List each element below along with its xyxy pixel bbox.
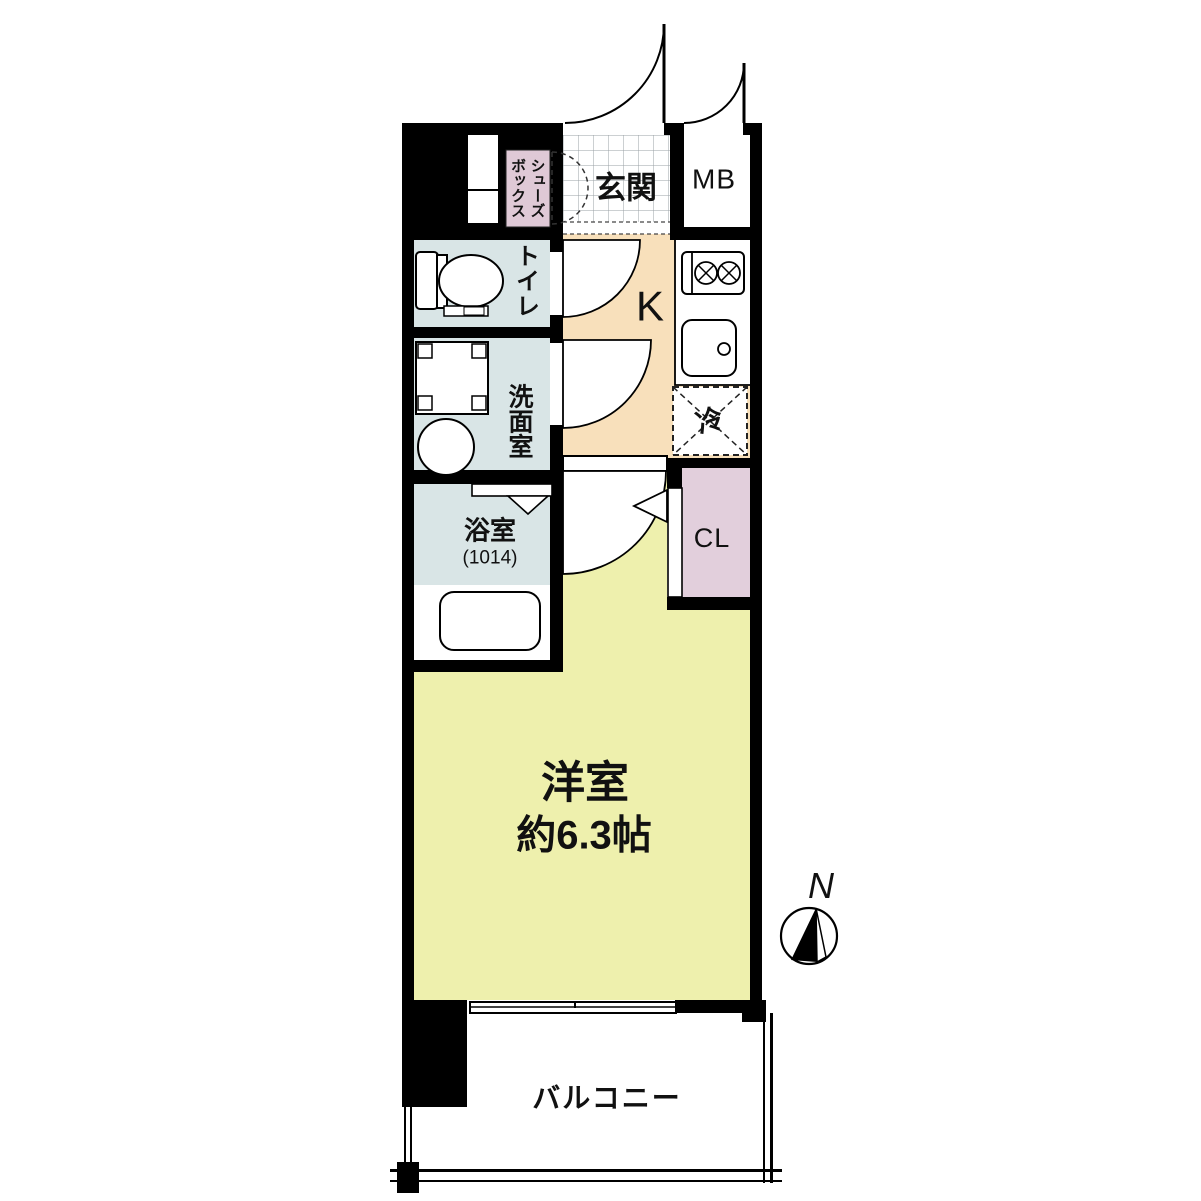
wall-segment xyxy=(667,468,682,488)
wall-segment xyxy=(742,1013,766,1022)
wall-segment xyxy=(402,327,550,338)
compass xyxy=(781,908,837,964)
toilet-label: トイレ xyxy=(511,244,538,319)
washbasin xyxy=(418,419,474,475)
meter-box-label: MB xyxy=(692,163,736,194)
bathroom-label: 浴室 xyxy=(464,516,516,545)
washroom-label: 洗面室 xyxy=(505,384,533,459)
pipe-space-box xyxy=(468,135,498,223)
washer-pan-corner xyxy=(418,396,432,410)
kitchen-label: K xyxy=(636,282,664,329)
entrance-label: 玄関 xyxy=(595,172,657,207)
bathroom-door-track xyxy=(472,484,552,496)
balcony-railing xyxy=(404,1107,406,1163)
sink-faucet xyxy=(718,343,730,355)
balcony-label: バルコニー xyxy=(532,1082,681,1113)
balcony-railing xyxy=(410,1107,412,1163)
main-room-doorway-header xyxy=(563,456,667,471)
wall-segment xyxy=(667,458,762,468)
wall-segment xyxy=(402,1000,467,1107)
wall-segment xyxy=(402,470,563,484)
washer-pan-corner xyxy=(472,396,486,410)
closet-label: CL xyxy=(694,523,731,553)
wall-segment xyxy=(550,425,563,672)
wall-segment xyxy=(750,123,762,1013)
entrance-step xyxy=(563,222,670,234)
wall-segment xyxy=(550,240,563,252)
shoe-box-label: シューズ ボックス xyxy=(508,158,547,218)
washer-pan-corner xyxy=(472,344,486,358)
meter-box-door-arc xyxy=(684,63,744,123)
entrance-door-arc xyxy=(565,24,664,123)
balcony-railing xyxy=(770,1013,773,1183)
wall-segment xyxy=(670,227,762,240)
balcony-railing xyxy=(390,1180,782,1182)
balcony-railing xyxy=(390,1169,782,1172)
bathroom-size-label: (1014) xyxy=(463,547,518,568)
toilet-tank xyxy=(416,252,438,309)
toilet-control-buttons xyxy=(464,307,484,315)
wall-segment xyxy=(670,123,684,240)
main-room-label: 洋室 xyxy=(541,758,629,807)
wall-segment xyxy=(550,315,563,343)
washer-pan-corner xyxy=(418,344,432,358)
wall-segment xyxy=(402,660,563,672)
wall-segment xyxy=(667,597,762,610)
toilet-bowl xyxy=(439,255,503,307)
bathtub xyxy=(440,592,540,650)
closet-door-panel xyxy=(668,488,682,597)
balcony-railing xyxy=(763,1013,765,1183)
floor-plan: 玄関 MB シューズ ボックス トイレ 洗面室 浴室 (1014) K 冷 CL… xyxy=(0,0,1201,1201)
wall-segment xyxy=(402,123,414,1010)
main-room-size-label: 約6.3帖 xyxy=(516,814,652,859)
compass-north-label: N xyxy=(808,866,834,906)
wall-segment xyxy=(675,1000,766,1013)
balcony-post xyxy=(397,1162,419,1193)
